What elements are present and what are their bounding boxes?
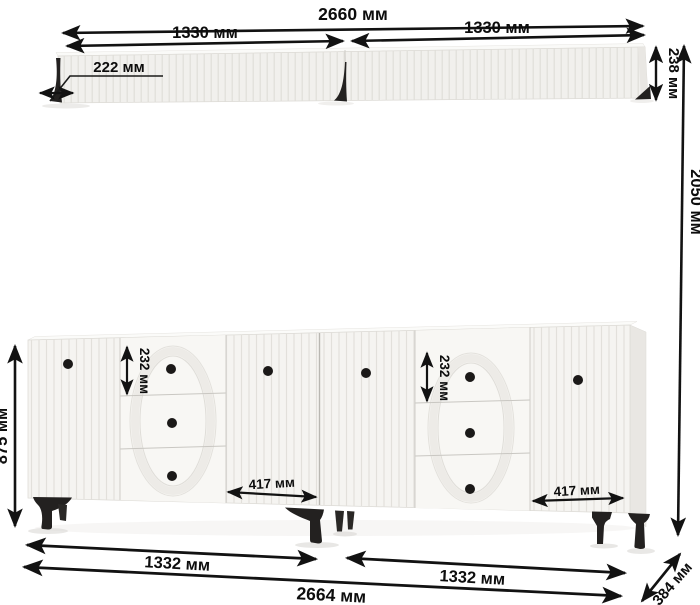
dim-shelf-height-label: 238 мм: [665, 48, 682, 99]
dim-sideboard-section-left-label: 1332 мм: [144, 553, 211, 574]
dim-shelf-section-right-label: 1330 мм: [464, 19, 530, 37]
dim-sideboard-depth: 384 мм: [642, 554, 696, 605]
knob-door-right-2: [573, 375, 583, 385]
shelf-shadow-left: [42, 104, 90, 109]
dim-door-width-left-label: 417 мм: [248, 475, 295, 492]
dim-shelf-depth-label: 222 мм: [93, 59, 144, 76]
shelf-front-fluting: [58, 47, 648, 103]
shelf-shadow-right: [630, 99, 654, 103]
leg-right-front: [628, 513, 650, 549]
dim-shelf-total-width-label: 2660 мм: [318, 4, 388, 24]
dim-door-width-right-label: 417 мм: [553, 482, 600, 499]
knob-door-right-1: [361, 368, 371, 378]
knob-door-left-1: [63, 359, 73, 369]
dim-shelf-height: 238 мм: [656, 47, 682, 100]
door-right-1: [321, 331, 415, 509]
knob-drawer-left-1: [166, 364, 176, 374]
dim-drawer-height-right-label: 232 мм: [437, 355, 452, 401]
dim-sideboard-height: 875 мм: [0, 346, 15, 526]
shelf-shadow-middle: [318, 102, 354, 106]
dim-sideboard-total-width: 2664 мм: [24, 567, 621, 605]
knob-drawer-right-3: [465, 484, 475, 494]
dim-shelf-section-left: 1330 мм: [67, 24, 343, 46]
leg-left-back: [58, 504, 67, 521]
knob-drawer-right-2: [465, 428, 475, 438]
dim-shelf-total-width: 2660 мм: [63, 4, 643, 33]
shelf-support-left: [50, 58, 62, 103]
knob-door-left-2: [263, 366, 273, 376]
dim-sideboard-height-label: 875 мм: [0, 408, 11, 465]
knob-drawer-left-2: [167, 418, 177, 428]
dim-sideboard-section-right-label: 1332 мм: [439, 567, 506, 589]
furniture-dimension-diagram: 2660 мм 1330 мм 1330 мм 222 мм 238 мм 20…: [0, 0, 700, 605]
door-left-1: [29, 338, 120, 500]
knob-drawer-left-3: [167, 471, 177, 481]
dim-drawer-height-left-label: 232 мм: [137, 348, 152, 394]
dim-wall-height: 2050 мм: [678, 46, 700, 535]
knob-drawer-right-1: [465, 372, 475, 382]
sideboard-side-panel-right: [630, 325, 646, 527]
dim-sideboard-total-width-label: 2664 мм: [296, 583, 367, 605]
diagram-canvas: 2660 мм 1330 мм 1330 мм 222 мм 238 мм 20…: [0, 0, 700, 605]
dim-shelf-section-left-label: 1330 мм: [172, 24, 238, 42]
sideboard: [28, 322, 655, 555]
dim-wall-height-label: 2050 мм: [687, 169, 700, 235]
